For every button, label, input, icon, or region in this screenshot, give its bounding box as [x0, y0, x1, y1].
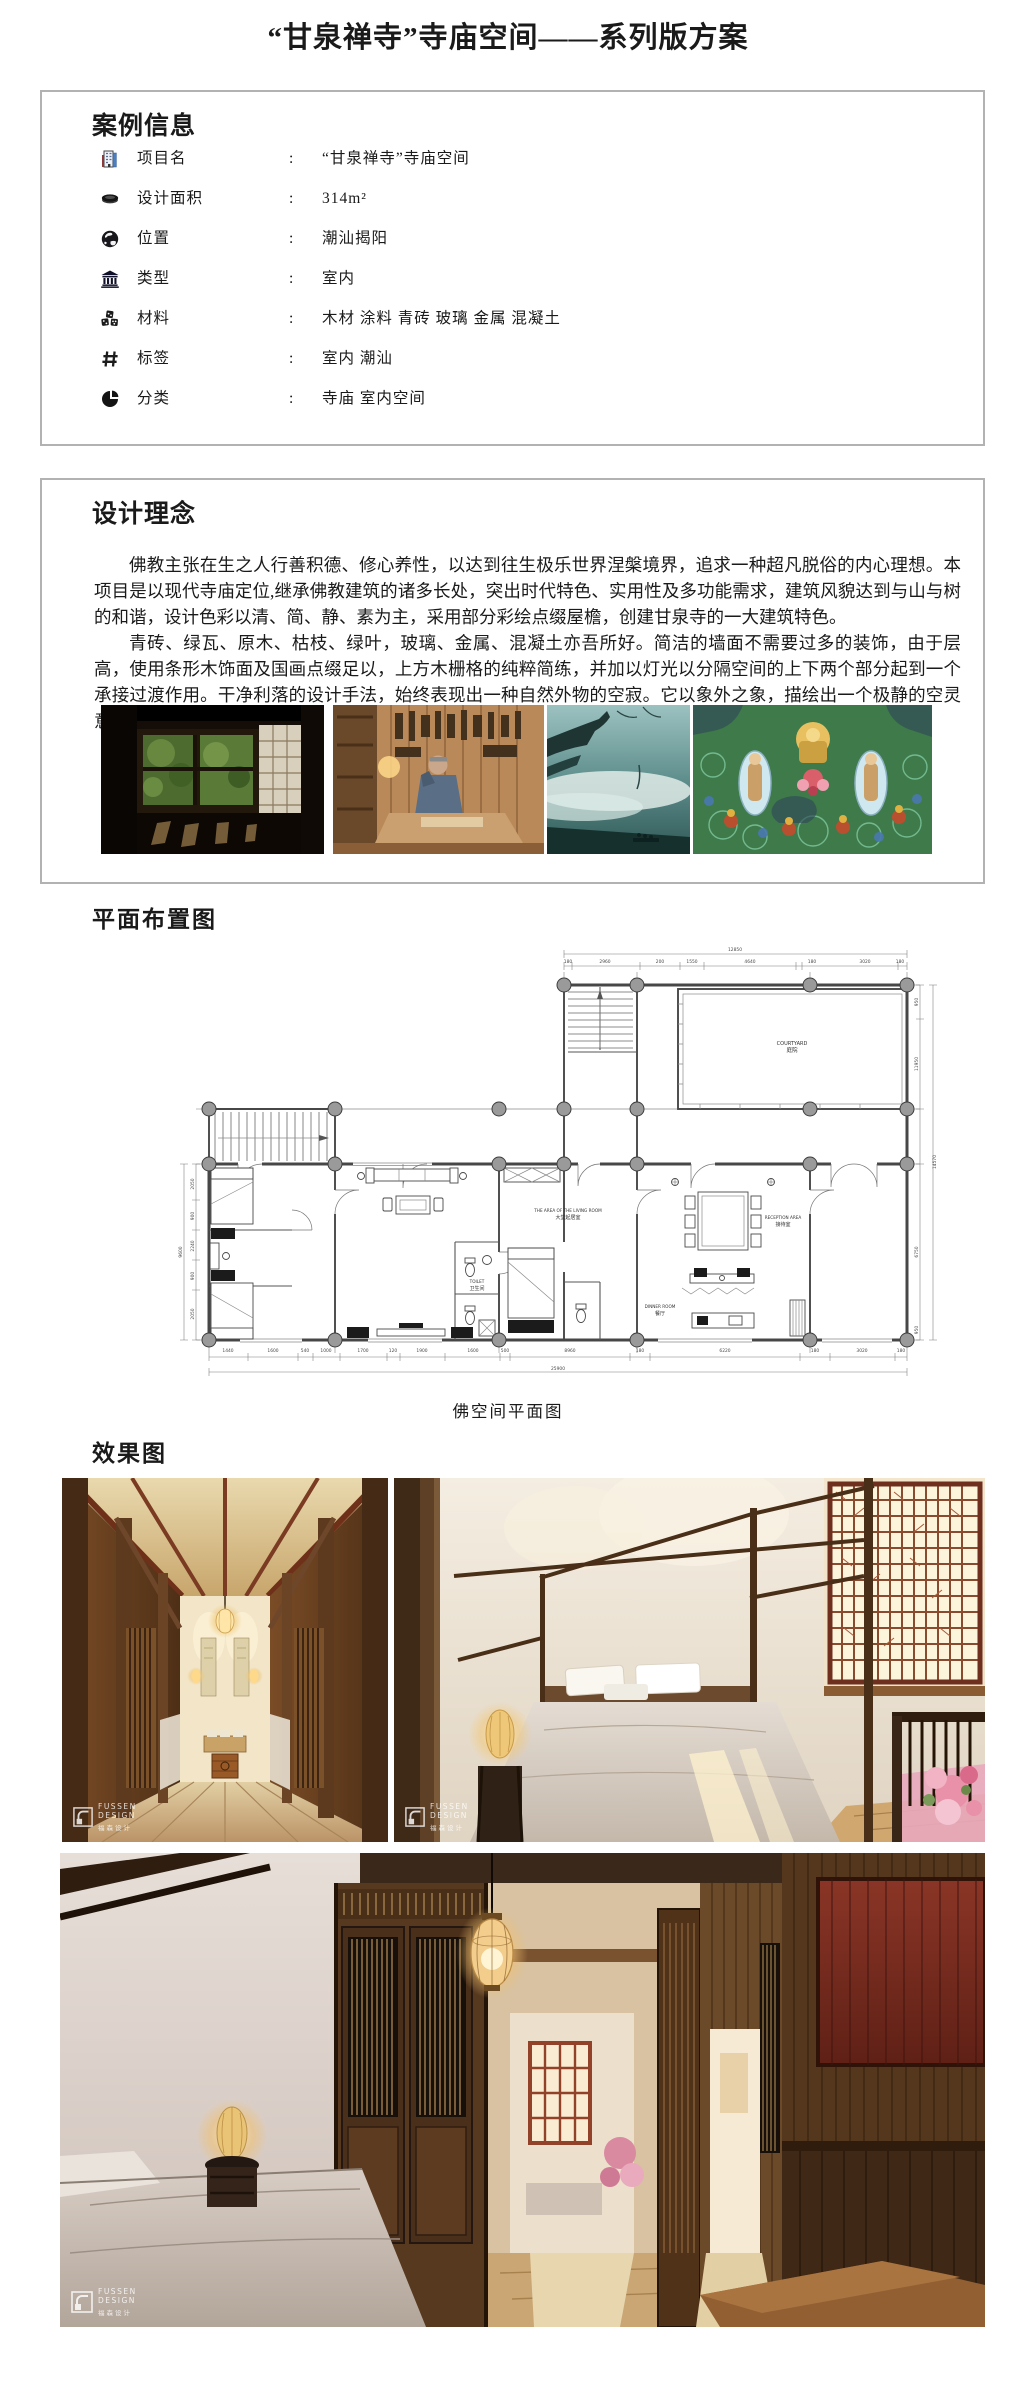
- building-icon: [100, 149, 120, 169]
- info-separator: :: [289, 387, 293, 411]
- plan-dim: 180: [564, 959, 573, 965]
- plan-dim: 120: [389, 1348, 398, 1354]
- info-separator: :: [289, 187, 293, 211]
- plan-dim: 1600: [467, 1348, 478, 1354]
- plan-dim: 14570: [932, 1155, 938, 1169]
- materials-icon: [100, 309, 120, 329]
- render-bedroom: FUSSENDESIGN福森设计: [394, 1478, 985, 1842]
- plan-dim: 1900: [416, 1348, 427, 1354]
- floor-plan-heading: 平面布置图: [92, 900, 217, 934]
- design-concept-panel: 设计理念 佛教主张在生之人行善积德、修心养性，以达到往生极乐世界涅槃境界，追求一…: [40, 478, 985, 884]
- plan-dim: 1440: [222, 1348, 233, 1354]
- watermark-cn: 福森设计: [98, 1822, 137, 1832]
- plan-dim: 950: [914, 998, 920, 1007]
- reference-photo-workshop: [333, 705, 544, 854]
- render-bedroom-large: FUSSENDESIGN福森设计: [60, 1853, 985, 2327]
- plan-dim: 11950: [914, 1057, 920, 1071]
- info-separator: :: [289, 267, 293, 291]
- plan-dim: 6220: [719, 1348, 730, 1354]
- area-icon: [100, 189, 120, 209]
- plan-label-reception-en: RECEPTION AREA: [765, 1215, 802, 1220]
- plan-dim: 900: [190, 1212, 196, 1221]
- info-row-tags: 标签 : 室内 潮汕: [42, 347, 983, 371]
- plan-dim: 2050: [190, 1178, 196, 1189]
- category-icon: [100, 389, 120, 409]
- plan-dim: 180: [897, 1348, 906, 1354]
- plan-dim: 25900: [551, 1366, 565, 1372]
- info-value: 潮汕揭阳: [322, 227, 388, 251]
- info-label: 项目名: [137, 147, 187, 171]
- case-info-panel: 案例信息 项目名 : “甘泉禅寺”寺庙空间 设计面积 : 314m² 位置 : …: [40, 90, 985, 446]
- info-separator: :: [289, 347, 293, 371]
- info-separator: :: [289, 227, 293, 251]
- plan-label-toilet-en: TOILET: [469, 1279, 485, 1284]
- info-row-project: 项目名 : “甘泉禅寺”寺庙空间: [42, 147, 983, 171]
- plan-dim: 1550: [686, 959, 697, 965]
- info-label: 分类: [137, 387, 170, 411]
- globe-icon: [100, 229, 120, 249]
- info-separator: :: [289, 147, 293, 171]
- info-value: 寺庙 室内空间: [322, 387, 426, 411]
- plan-label-living-cn: 大堂起居室: [555, 1214, 580, 1221]
- watermark-en: FUSSENDESIGN: [98, 1802, 137, 1822]
- plan-dim: 1700: [357, 1348, 368, 1354]
- plan-dim: 6750: [914, 1246, 920, 1257]
- info-row-materials: 材料 : 木材 涂料 青砖 玻璃 金属 混凝土: [42, 307, 983, 331]
- info-value: 木材 涂料 青砖 玻璃 金属 混凝土: [322, 307, 561, 331]
- fussen-logo-icon: [405, 1807, 425, 1827]
- plan-dim: 4640: [744, 959, 755, 965]
- plan-dim: 540: [301, 1348, 310, 1354]
- plan-dim: 2050: [190, 1308, 196, 1319]
- plan-dim: 2240: [190, 1240, 196, 1251]
- info-value: 室内 潮汕: [322, 347, 393, 371]
- plan-dim: 12850: [728, 947, 742, 953]
- plan-dim: 180: [808, 959, 817, 965]
- plan-dim: 3020: [856, 1348, 867, 1354]
- info-row-category: 分类 : 寺庙 室内空间: [42, 387, 983, 411]
- designer-watermark: FUSSENDESIGN福森设计: [73, 1802, 137, 1833]
- page-title: “甘泉禅寺”寺庙空间——系列版方案: [0, 14, 1016, 56]
- plan-dim: 1000: [320, 1348, 331, 1354]
- tag-icon: [100, 349, 120, 369]
- concept-paragraph-1: 佛教主张在生之人行善积德、修心养性，以达到往生极乐世界涅槃境界，追求一种超凡脱俗…: [94, 552, 961, 630]
- plan-dim: 3020: [859, 959, 870, 965]
- plan-dim: 180: [811, 1348, 820, 1354]
- info-row-location: 位置 : 潮汕揭阳: [42, 227, 983, 251]
- plan-label-living-en: THE AREA OF THE LIVING ROOM: [533, 1208, 602, 1213]
- info-separator: :: [289, 307, 293, 331]
- design-concept-heading: 设计理念: [92, 494, 196, 530]
- info-label: 位置: [137, 227, 170, 251]
- watermark-cn: 福森设计: [98, 2307, 137, 2317]
- plan-label-dinner-cn: 餐厅: [655, 1310, 665, 1317]
- info-label: 材料: [137, 307, 170, 331]
- floor-plan-caption: 佛空间平面图: [0, 1398, 1016, 1422]
- temple-icon: [100, 269, 120, 289]
- render-corridor: FUSSENDESIGN福森设计: [62, 1478, 388, 1842]
- info-label: 设计面积: [137, 187, 203, 211]
- reference-photo-thangka: [693, 705, 932, 854]
- plan-dim: 500: [501, 1348, 510, 1354]
- plan-dim: 180: [636, 1348, 645, 1354]
- watermark-cn: 福森设计: [430, 1822, 469, 1832]
- plan-dim: 8960: [564, 1348, 575, 1354]
- info-value: 室内: [322, 267, 355, 291]
- plan-label-dinner-en: DINNER ROOM: [645, 1304, 676, 1309]
- plan-label-courtyard-en: COURTYARD: [777, 1041, 808, 1047]
- fussen-logo-icon: [73, 1807, 93, 1827]
- case-info-heading: 案例信息: [92, 106, 196, 142]
- plan-label-toilet-cn: 卫生间: [469, 1285, 484, 1292]
- watermark-en: FUSSENDESIGN: [430, 1802, 469, 1822]
- info-label: 标签: [137, 347, 170, 371]
- plan-dim: 180: [896, 959, 905, 965]
- info-value: 314m²: [322, 187, 367, 211]
- plan-dim: 900: [190, 1272, 196, 1281]
- info-value: “甘泉禅寺”寺庙空间: [322, 147, 470, 171]
- reference-photo-dark-room: [101, 705, 324, 854]
- info-row-area: 设计面积 : 314m²: [42, 187, 983, 211]
- reference-photo-misty-temple: [547, 705, 690, 854]
- info-label: 类型: [137, 267, 170, 291]
- plan-dim: 9600: [178, 1246, 184, 1257]
- watermark-en: FUSSENDESIGN: [98, 2287, 137, 2307]
- designer-watermark: FUSSENDESIGN福森设计: [71, 2287, 137, 2318]
- renders-heading: 效果图: [92, 1434, 167, 1468]
- plan-dim: 950: [914, 1326, 920, 1335]
- plan-label-reception-cn: 接待室: [775, 1221, 790, 1228]
- floor-plan-drawing: COURTYARD 庭院 THE AREA OF THE LIVING ROOM…: [100, 942, 940, 1392]
- plan-dim: 2960: [599, 959, 610, 965]
- designer-watermark: FUSSENDESIGN福森设计: [405, 1802, 469, 1833]
- plan-dim: 1600: [267, 1348, 278, 1354]
- plan-label-courtyard-cn: 庭院: [786, 1046, 798, 1054]
- fussen-logo-icon: [71, 2291, 93, 2313]
- info-row-type: 类型 : 室内: [42, 267, 983, 291]
- plan-dim: 200: [656, 959, 665, 965]
